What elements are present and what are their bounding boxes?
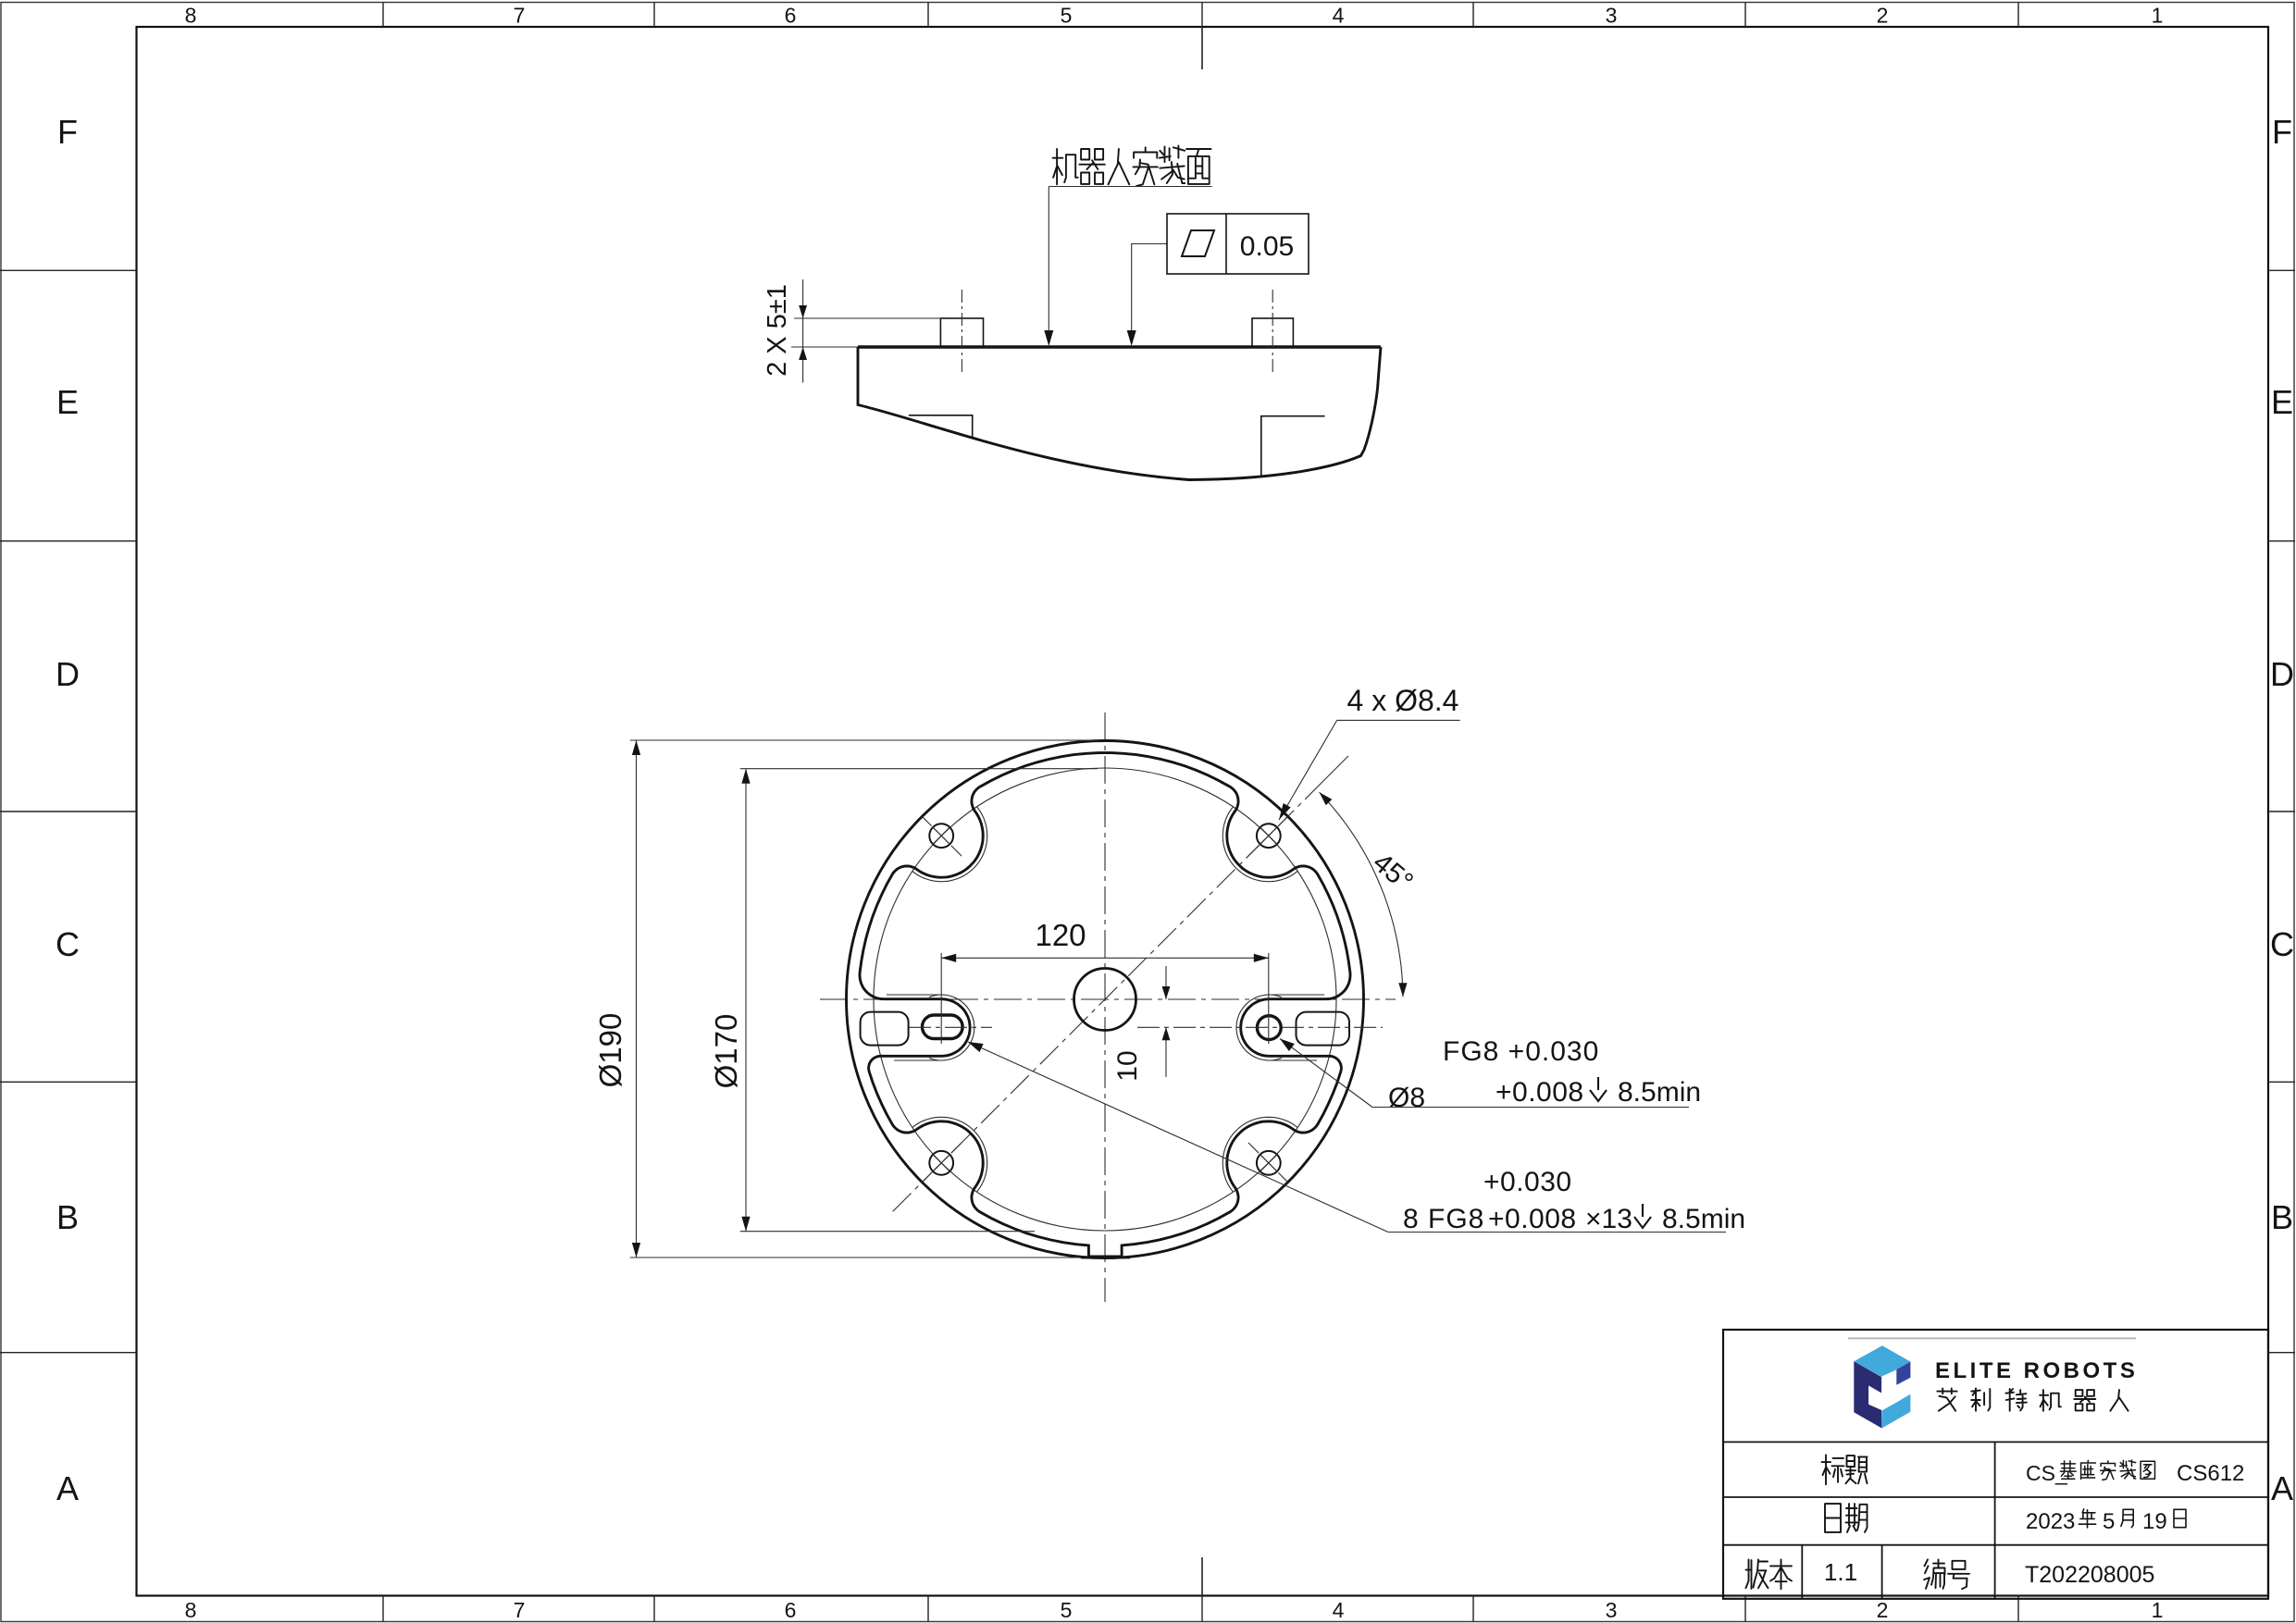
- svg-text:8: 8: [185, 4, 197, 28]
- svg-text:ELITE ROBOTS: ELITE ROBOTS: [1935, 1358, 2138, 1383]
- svg-text:+0.030: +0.030: [1483, 1167, 1572, 1197]
- svg-text:×13: ×13: [1585, 1204, 1632, 1234]
- svg-text:1: 1: [2152, 1598, 2164, 1622]
- svg-text:2 X 5±1: 2 X 5±1: [763, 284, 792, 377]
- svg-text:1.1: 1.1: [1824, 1558, 1857, 1586]
- svg-text:5: 5: [1061, 1598, 1073, 1622]
- svg-text:D: D: [2270, 655, 2294, 693]
- svg-text:2: 2: [1877, 4, 1889, 28]
- svg-text:4: 4: [1333, 1598, 1345, 1622]
- svg-text:Ø170: Ø170: [709, 1014, 743, 1089]
- svg-text:CS612: CS612: [2177, 1461, 2244, 1486]
- svg-text:10: 10: [1112, 1050, 1143, 1081]
- svg-text:0.05: 0.05: [1240, 231, 1294, 262]
- svg-text:120: 120: [1035, 918, 1086, 952]
- svg-text:8.5min: 8.5min: [1618, 1077, 1701, 1108]
- svg-text:5: 5: [1061, 4, 1073, 28]
- svg-text:F: F: [2272, 113, 2292, 151]
- svg-text:6: 6: [785, 1598, 797, 1622]
- svg-text:5: 5: [2103, 1509, 2115, 1534]
- svg-text:F: F: [57, 113, 78, 151]
- svg-text:A: A: [2271, 1469, 2293, 1507]
- svg-text:8.5min: 8.5min: [1662, 1204, 1745, 1234]
- svg-text:Ø8: Ø8: [1388, 1083, 1425, 1113]
- svg-text:+0.008: +0.008: [1496, 1077, 1584, 1108]
- svg-text:8 FG8: 8 FG8: [1403, 1204, 1484, 1234]
- svg-text:19: 19: [2142, 1509, 2167, 1534]
- svg-text:1: 1: [2152, 4, 2164, 28]
- svg-text:6: 6: [785, 4, 797, 28]
- svg-text:E: E: [2271, 383, 2293, 421]
- svg-text:C: C: [2270, 925, 2294, 963]
- svg-text:Ø190: Ø190: [593, 1013, 627, 1088]
- svg-text:A: A: [56, 1469, 79, 1507]
- svg-text:E: E: [56, 383, 79, 421]
- svg-text:B: B: [2271, 1198, 2293, 1236]
- svg-text:T202208005: T202208005: [2025, 1562, 2154, 1588]
- svg-text:3: 3: [1606, 1598, 1618, 1622]
- svg-text:3: 3: [1606, 4, 1618, 28]
- svg-text:B: B: [56, 1198, 79, 1236]
- svg-text:8: 8: [185, 1598, 197, 1622]
- svg-text:D: D: [56, 655, 80, 693]
- svg-text:2023: 2023: [2026, 1509, 2075, 1534]
- svg-text:2: 2: [1877, 1598, 1889, 1622]
- svg-text:+0.008: +0.008: [1488, 1204, 1577, 1234]
- svg-text:7: 7: [514, 1598, 526, 1622]
- svg-text:CS_: CS_: [2026, 1461, 2068, 1485]
- svg-text:4: 4: [1333, 4, 1345, 28]
- svg-text:7: 7: [514, 4, 526, 28]
- svg-text:C: C: [56, 925, 80, 963]
- svg-text:4 x Ø8.4: 4 x Ø8.4: [1347, 684, 1459, 717]
- svg-text:FG8 +0.030: FG8 +0.030: [1443, 1036, 1599, 1067]
